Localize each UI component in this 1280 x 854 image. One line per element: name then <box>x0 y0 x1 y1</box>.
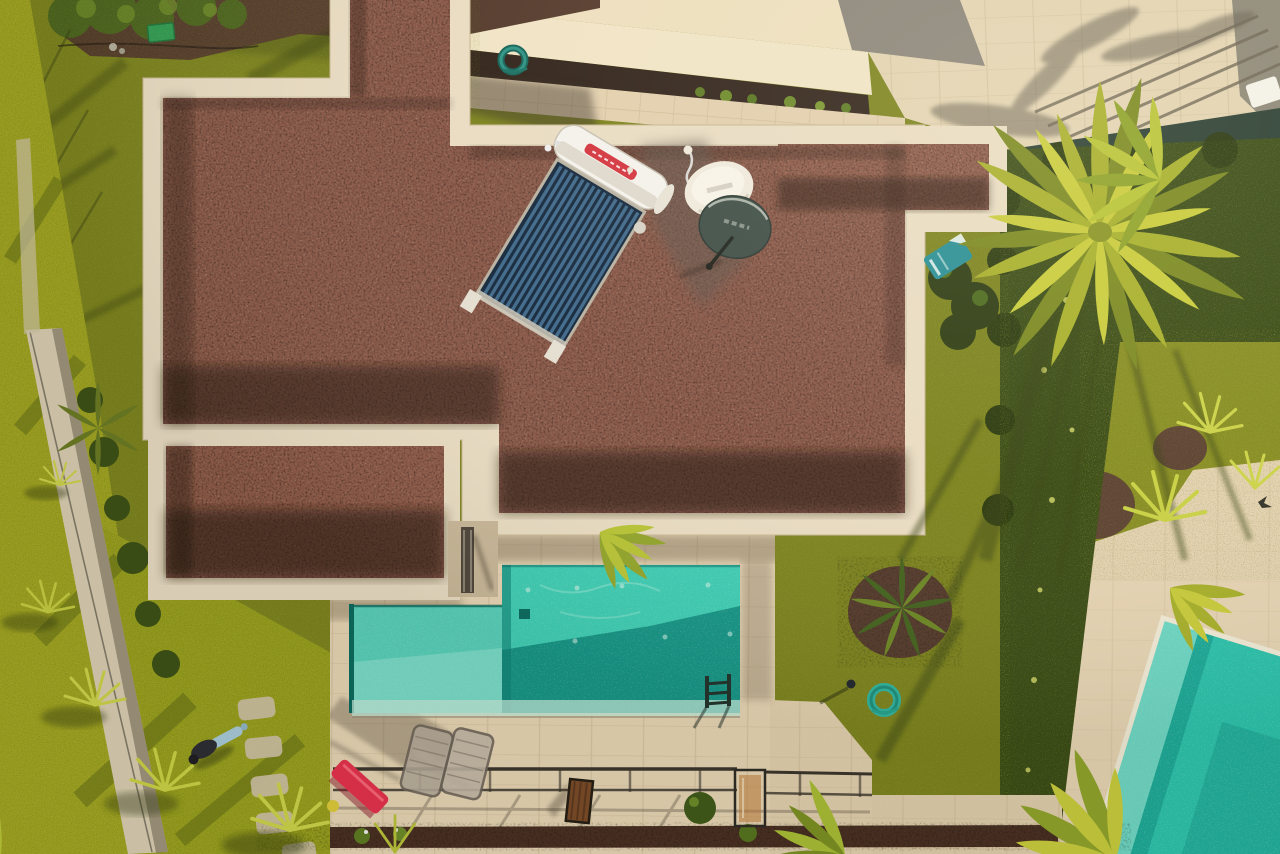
sunlight-overlay <box>0 0 1280 854</box>
aerial-photo-canvas <box>0 0 1280 854</box>
aerial-photo-villa <box>0 0 1280 854</box>
